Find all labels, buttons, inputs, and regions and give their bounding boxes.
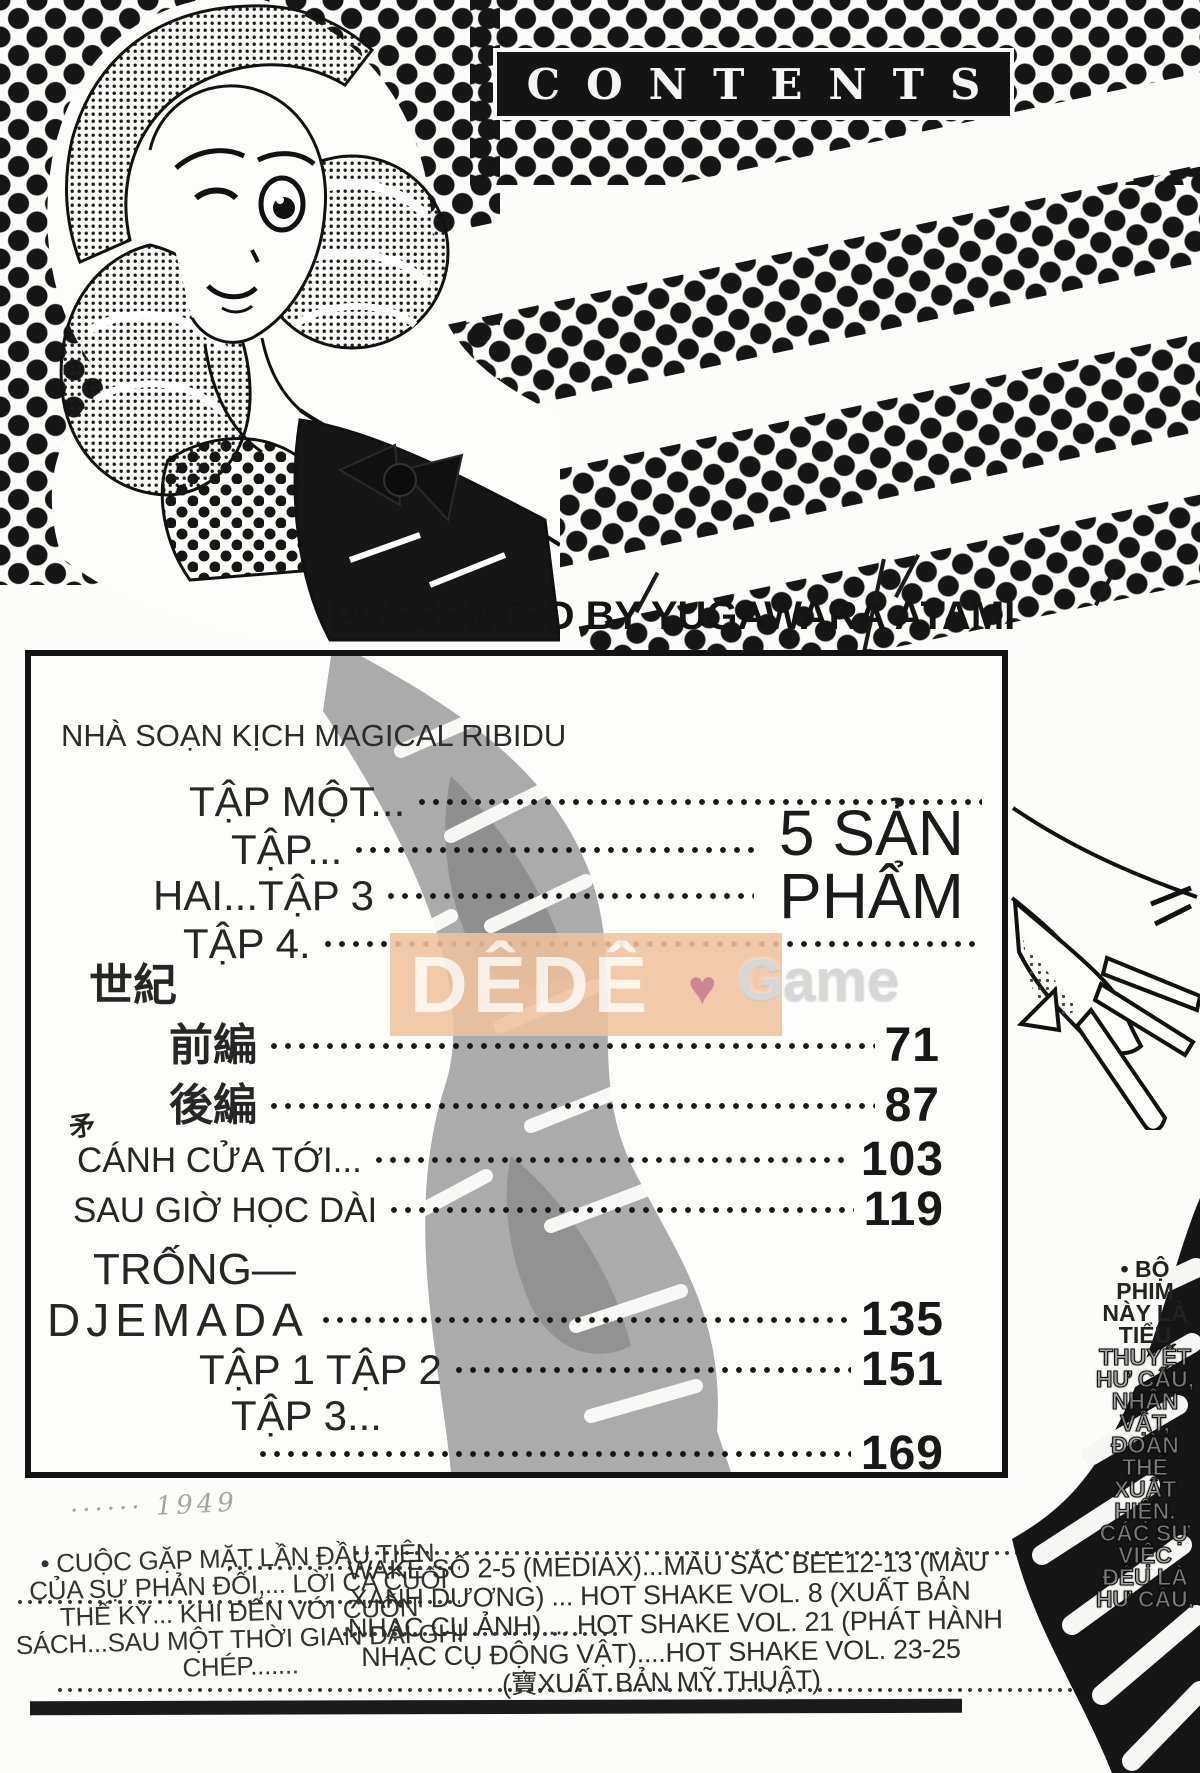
dotted-leader: [387, 1204, 853, 1216]
toc-page-number: 169: [861, 1430, 944, 1478]
toc-entry-label: TẬP 4.: [183, 923, 311, 965]
dotted-leader: [256, 1448, 851, 1460]
side-note-line: HƯ CẤU,: [1078, 1368, 1200, 1390]
side-note-line: CÁC SỰ: [1078, 1522, 1200, 1544]
side-note-line: TIỂU: [1078, 1324, 1200, 1346]
toc-page-number: 103: [861, 1136, 944, 1184]
side-note-line: VIỆC: [1078, 1544, 1200, 1566]
toc-row: DJEMADA 135: [47, 1294, 944, 1346]
toc-entry-label: 後編: [169, 1084, 257, 1128]
side-note-line: PHIM: [1078, 1280, 1200, 1302]
girl-illustration: [0, 0, 560, 650]
toc-row: TẬP 1 TẬP 2 151: [199, 1344, 944, 1396]
watermark-text-dede: DÊDÊ: [410, 939, 652, 1031]
toc-box: NHÀ SOẠN KỊCH MAGICAL RIBIDU 5 SẢN PHẨM …: [25, 650, 1008, 1478]
dotted-leader: [352, 844, 754, 856]
side-note-column: • BỘ PHIM NÀY LÀ TIỂU THUYẾT HƯ CẤU, NHÂ…: [1078, 1258, 1200, 1610]
hand-illustration: [1005, 690, 1200, 1130]
dotted-leader: [319, 1314, 851, 1326]
toc-entry-label: TRỐNG—: [93, 1248, 296, 1292]
side-note-line: ĐOÀN: [1078, 1434, 1200, 1456]
side-note-line: ĐỀU LÀ: [1078, 1566, 1200, 1588]
toc-row: TRỐNG—: [93, 1244, 296, 1296]
toc-subtitle: NHÀ SOẠN KỊCH MAGICAL RIBIDU: [61, 718, 566, 754]
toc-row: 169: [246, 1428, 944, 1480]
watermark: DÊDÊ ♥ Game: [390, 933, 950, 1041]
toc-entry-label: HAI...TẬP 3: [153, 875, 374, 917]
side-note-line: HƯ CẤU.: [1078, 1588, 1200, 1610]
side-note-line: HIỆN.: [1078, 1500, 1200, 1522]
toc-page-number: 119: [864, 1186, 944, 1234]
toc-row: TẬP...: [231, 824, 764, 876]
side-note-line: NÀY LÀ: [1078, 1302, 1200, 1324]
dotted-leader: [267, 1040, 875, 1052]
toc-entry-label: TẬP...: [231, 829, 342, 871]
toc-row: SAU GIỜ HỌC DÀI 119: [73, 1184, 944, 1236]
side-note-line: • BỘ: [1078, 1258, 1200, 1280]
toc-page-number: 87: [885, 1082, 940, 1130]
side-note-line: VẬT,: [1078, 1412, 1200, 1434]
toc-entry-label: 世紀: [89, 964, 177, 1008]
manga-contents-page: CONTENTS PRESENTED BY YUGAWARA ATAMI: [0, 0, 1200, 1773]
dotted-leader: [372, 1154, 851, 1166]
side-note-line: THUYẾT: [1078, 1346, 1200, 1368]
toc-page-number: 151: [861, 1346, 944, 1394]
toc-row: 世紀: [89, 960, 177, 1012]
toc-row: HAI...TẬP 3: [153, 870, 764, 922]
side-note-line: NHÂN: [1078, 1390, 1200, 1412]
toc-entry-label: 前編: [169, 1024, 257, 1068]
dotted-leader: [452, 1364, 851, 1376]
pencil-scribble: ······ 1949: [69, 1488, 238, 1527]
footer-right-note: WAKE SỐ 2-5 (MEDIAX)...MÀU SẮC BEE12-13 …: [347, 1548, 974, 1702]
side-note-line: XUẤT: [1078, 1478, 1200, 1500]
dotted-leader: [267, 1100, 875, 1112]
toc-row: CÁNH CỬA TỚI... 103: [77, 1134, 944, 1186]
heart-icon: ♥: [688, 961, 717, 1016]
toc-row: 後編 87: [169, 1080, 940, 1132]
presented-by-text: PRESENTED BY YUGAWARA ATAMI: [330, 594, 970, 639]
toc-entry-label: TẬP MỘT...: [189, 781, 405, 823]
contents-title-bar: CONTENTS: [497, 52, 1010, 116]
toc-entry-label: SAU GIỜ HỌC DÀI: [73, 1193, 377, 1228]
side-note-line: THỂ: [1078, 1456, 1200, 1478]
bottom-rule-bar: [30, 1699, 962, 1715]
contents-title: CONTENTS: [501, 60, 1007, 109]
dotted-leader: [384, 890, 754, 902]
toc-page-number: 135: [861, 1296, 944, 1344]
toc-big-label: 5 SẢN PHẨM: [779, 802, 1004, 927]
toc-entry-label: DJEMADA: [47, 1297, 309, 1343]
watermark-text-game: Game: [738, 947, 899, 1014]
toc-entry-label: TẬP 1 TẬP 2: [199, 1349, 442, 1391]
toc-entry-label: CÁNH CỬA TỚI...: [77, 1143, 362, 1178]
